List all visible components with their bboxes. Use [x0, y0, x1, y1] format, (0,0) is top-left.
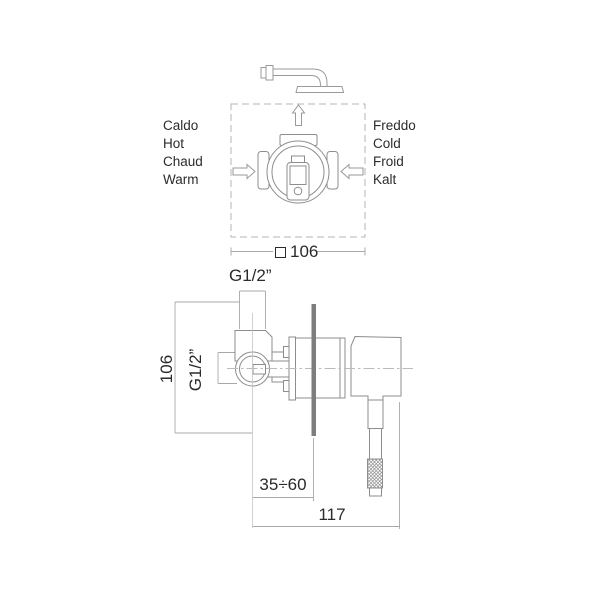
mixer-valve-side [235, 331, 401, 497]
shower-arm-icon [261, 66, 344, 93]
hot-label-it: Caldo [163, 117, 203, 135]
height-dimension-label: 106 [157, 355, 177, 383]
handle-stem-tip [370, 488, 382, 496]
top-port-thread-label: G1/2” [229, 266, 272, 286]
shower-arm-flange-cap [261, 68, 266, 79]
drawing-linework [0, 0, 600, 600]
front-view-diagram [231, 66, 365, 256]
cold-water-labels: Freddo Cold Froid Kalt [373, 117, 416, 189]
front-square-dimension-value: 106 [290, 242, 318, 262]
front-square-dimension: 106 [275, 242, 318, 262]
hot-inlet-arrow-icon [233, 165, 255, 179]
plate-tab-top [284, 347, 290, 358]
cold-label-it: Freddo [373, 117, 416, 135]
cold-label-en: Cold [373, 135, 416, 153]
side-port-socket [253, 365, 266, 375]
cold-inlet-arrow-icon [341, 165, 363, 179]
wall-line [312, 304, 317, 436]
shower-arm-tube-outer [273, 69, 327, 87]
hot-label-en: Hot [163, 135, 203, 153]
outlet-up-arrow-icon [293, 105, 305, 126]
shower-arm-tube-inner [273, 76, 321, 87]
trim-sleeve [296, 338, 346, 398]
handle-stem-lower [370, 429, 382, 460]
handle-stem-upper [368, 400, 383, 429]
total-depth-dimension-label: 117 [318, 505, 345, 525]
handle-top-knob [292, 156, 305, 163]
shower-head [296, 87, 344, 93]
hot-label-de: Warm [163, 171, 203, 189]
shower-arm-flange [266, 66, 273, 81]
square-outline-symbol [275, 247, 286, 258]
handle-knurled-grip [368, 459, 383, 488]
hot-label-fr: Chaud [163, 153, 203, 171]
wall-depth-range-label: 35÷60 [259, 475, 306, 495]
dim-g12-side-lines [218, 353, 237, 384]
technical-drawing-page: Caldo Hot Chaud Warm Freddo Cold Froid K… [0, 0, 600, 600]
side-port-thread-label: G1/2” [186, 349, 206, 392]
cold-label-fr: Froid [373, 153, 416, 171]
mixer-valve-front [258, 135, 338, 204]
cold-label-de: Kalt [373, 171, 416, 189]
hot-water-labels: Caldo Hot Chaud Warm [163, 117, 203, 189]
plate-tab-bottom [284, 381, 290, 392]
